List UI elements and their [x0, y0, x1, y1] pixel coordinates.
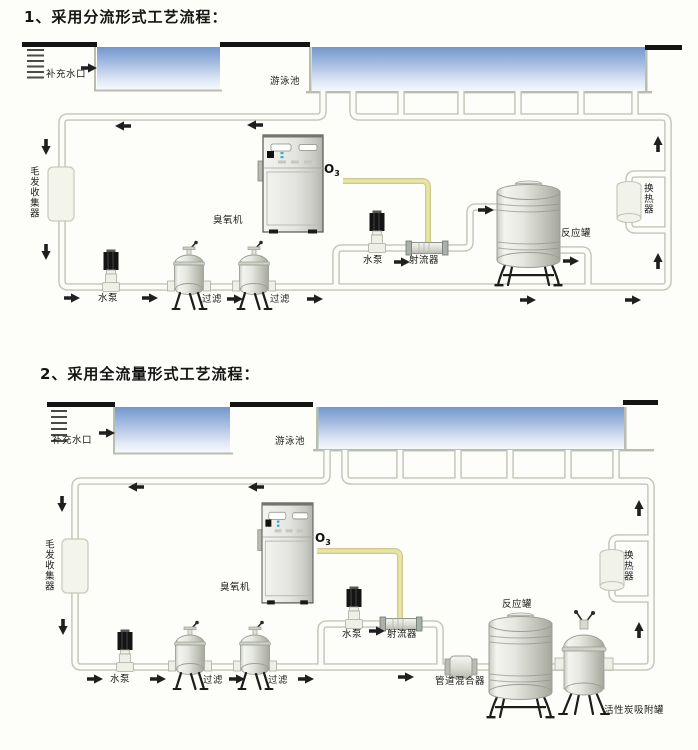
d1-heat-exchanger-label: 换热器: [641, 183, 652, 215]
d1-main-pump-label: 水泵: [98, 294, 118, 304]
d1-jet-injector: [406, 241, 448, 255]
d1-ozone-machine-label: 臭氧机: [213, 216, 243, 226]
d2-heat-exchanger-label: 换热器: [621, 550, 632, 582]
d1-filter-a-label: 过滤: [202, 295, 222, 305]
d1-ozone-pipe: [343, 181, 428, 243]
d2-ozone-machine-label: 臭氧机: [220, 583, 250, 593]
d1-deck-bar-left: [22, 42, 97, 47]
d2-ozone-generator: [258, 503, 313, 604]
d1-filter-b-label: 过滤: [270, 295, 290, 305]
d2-carbon-tank: [555, 610, 613, 714]
process-flow-page: 1、采用分流形式工艺流程： 补充水口 游泳池 毛发收集器 水泵 过滤 过滤 臭氧…: [0, 0, 698, 750]
d2-filter-b-label: 过滤: [268, 676, 288, 686]
d1-heat-exchanger: [617, 182, 641, 223]
d2-filter-a-label: 过滤: [203, 676, 223, 686]
d2-jet-injector-label: 射流器: [387, 630, 417, 640]
d1-reaction-tank-label: 反应罐: [561, 229, 591, 239]
d2-deck-bar-right: [623, 400, 658, 405]
d2-pipes: [75, 450, 651, 667]
d1-pool-label: 游泳池: [270, 77, 300, 87]
diagram1-graphics: [22, 42, 682, 309]
d2-main-pump-label: 水泵: [110, 675, 130, 685]
d2-pool-water: [318, 407, 624, 450]
d2-reaction-tank: [487, 613, 555, 718]
diagram2-graphics: [47, 400, 658, 718]
d1-deck-bar-middle: [220, 42, 310, 47]
d1-makeup-inlet-grate: [27, 49, 44, 79]
d2-deck-bar-middle: [230, 402, 313, 407]
d1-o3-label: O3: [324, 160, 340, 178]
d2-balance-tank-water: [115, 407, 230, 453]
d2-jet-pump-label: 水泵: [342, 630, 362, 640]
d2-pool: [47, 400, 658, 455]
d2-makeup-inlet-label: 补充水口: [52, 436, 92, 446]
d1-ozone-generator: [258, 135, 323, 234]
d1-jet-pump: [369, 211, 386, 253]
d2-main-pump: [117, 630, 134, 672]
d2-pool-label: 游泳池: [275, 437, 305, 447]
d1-main-pump: [103, 250, 120, 292]
d2-hair-collector: [62, 539, 88, 593]
d1-reaction-tank: [495, 181, 563, 286]
d1-jet-injector-label: 射流器: [409, 256, 439, 266]
d2-pipeline-mixer: [445, 656, 477, 678]
d1-hair-collector-label: 毛发收集器: [27, 166, 38, 219]
d1-balance-tank-water: [97, 47, 220, 90]
d1-jet-pump-label: 水泵: [363, 256, 383, 266]
d2-o3-label: O3: [315, 529, 331, 547]
d2-deck-bar-left: [47, 402, 115, 407]
diagram1-title: 1、采用分流形式工艺流程：: [24, 6, 227, 27]
d2-flow-arrows: [57, 428, 643, 683]
d2-pipeline-mixer-label: 管道混合器: [435, 677, 485, 687]
d1-pool: [22, 42, 682, 93]
diagram2-title: 2、采用全流量形式工艺流程：: [40, 363, 259, 384]
d2-hair-collector-label: 毛发收集器: [42, 539, 53, 592]
d2-jet-pump: [346, 587, 363, 629]
d2-carbon-tank-label: 活性炭吸附罐: [604, 706, 664, 716]
d1-makeup-inlet-label: 补充水口: [46, 70, 86, 80]
d1-pool-water: [312, 47, 645, 92]
d1-deck-bar-right: [645, 45, 682, 50]
d1-hair-collector: [48, 167, 74, 221]
d2-reaction-tank-label: 反应罐: [502, 600, 532, 610]
